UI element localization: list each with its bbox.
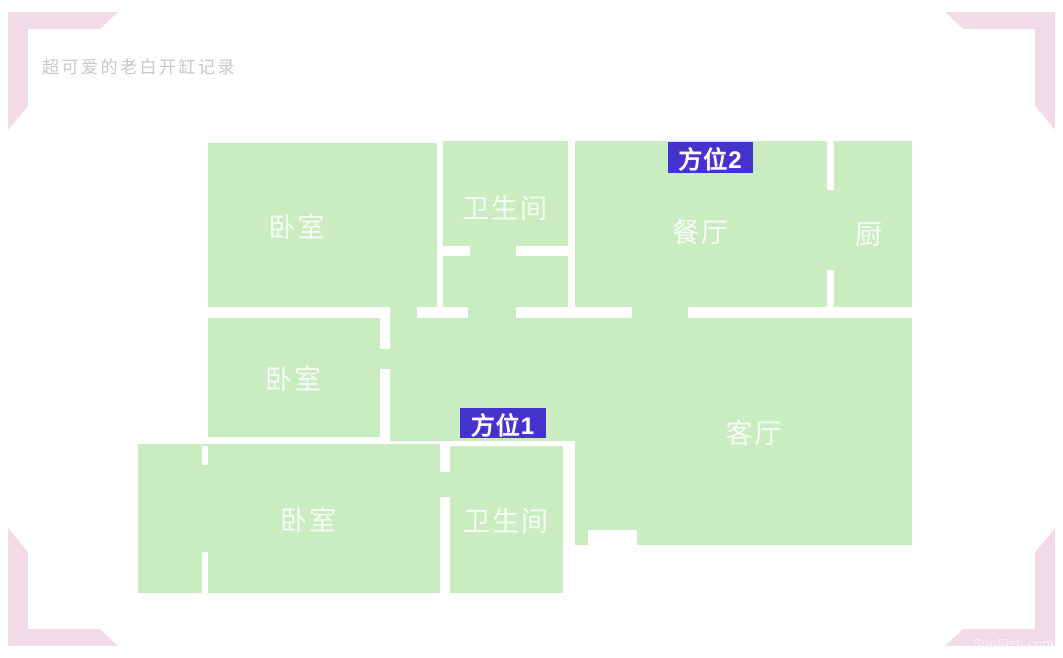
room-label-dining: 餐厅 [575, 211, 827, 250]
door-opening [468, 305, 516, 322]
room-bedroom-3: 卧室 [138, 444, 440, 593]
room-bedroom-2: 卧室 [208, 318, 380, 437]
watermark: SunFish.com [973, 636, 1054, 651]
room-bathroom-2: 卫生间 [450, 446, 563, 593]
corner-decoration-bottom-right [937, 528, 1055, 646]
wall-segment [443, 246, 470, 256]
marker-position-1: 方位1 [460, 408, 546, 438]
room-bathroom-1: 卫生间 [443, 141, 568, 307]
marker-position-2: 方位2 [668, 142, 753, 173]
room-label-bathroom-1: 卫生间 [443, 189, 568, 223]
door-opening [380, 349, 390, 369]
wall-segment [202, 552, 208, 593]
corner-decoration-bottom-left [8, 528, 126, 646]
room-label-bedroom-3: 卧室 [138, 444, 440, 593]
door-opening [440, 472, 450, 497]
wall-segment [202, 446, 208, 465]
room-label-bathroom-2: 卫生间 [450, 446, 563, 593]
room-living: 客厅 [575, 318, 912, 545]
room-label-bedroom-1: 卧室 [208, 143, 437, 307]
page-title: 超可爱的老白开缸记录 [42, 53, 237, 78]
door-opening [390, 305, 417, 320]
wall-segment [827, 141, 834, 190]
wall-notch [588, 530, 637, 547]
door-opening [632, 305, 688, 320]
wall-segment [516, 246, 568, 256]
room-bedroom-1: 卧室 [208, 143, 437, 307]
slide-frame: 超可爱的老白开缸记录 卧室 卫生间 餐厅 厨 卧室 客厅 [0, 0, 1063, 658]
room-label-kitchen: 厨 [827, 213, 912, 252]
wall-segment [827, 270, 834, 307]
room-label-bedroom-2: 卧室 [208, 318, 380, 437]
corner-decoration-top-right [937, 12, 1055, 130]
room-label-living: 客厅 [575, 318, 912, 545]
